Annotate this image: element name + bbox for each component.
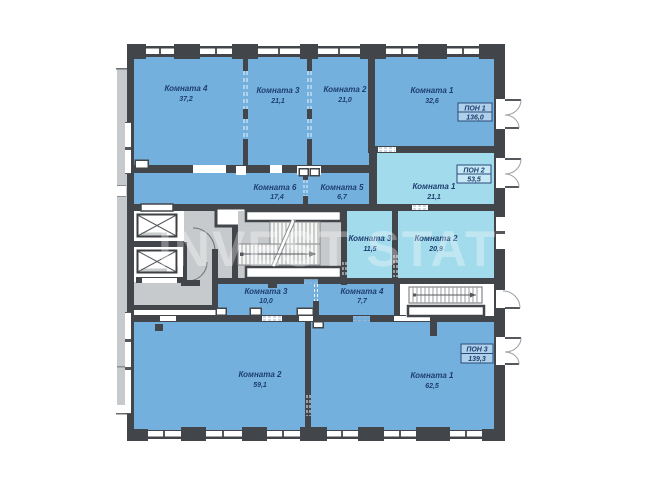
svg-text:37,2: 37,2 <box>179 96 193 103</box>
svg-text:ПОН 3: ПОН 3 <box>466 347 487 354</box>
svg-text:21,1: 21,1 <box>426 194 441 201</box>
svg-text:139,3: 139,3 <box>468 356 486 363</box>
svg-text:17,4: 17,4 <box>270 194 284 201</box>
svg-text:Комната 2: Комната 2 <box>324 85 367 94</box>
svg-text:Комната 1: Комната 1 <box>411 86 454 95</box>
svg-text:62,5: 62,5 <box>425 383 439 390</box>
svg-text:6,7: 6,7 <box>337 194 348 201</box>
svg-text:Комната 1: Комната 1 <box>411 371 454 380</box>
svg-text:59,1: 59,1 <box>253 382 267 389</box>
svg-text:Комната 4: Комната 4 <box>165 84 208 93</box>
svg-text:Комната 3: Комната 3 <box>257 86 300 95</box>
svg-text:Комната 1: Комната 1 <box>413 182 456 191</box>
svg-text:INVEST STAT: INVEST STAT <box>158 221 498 277</box>
svg-text:ПОН 2: ПОН 2 <box>463 168 484 175</box>
svg-text:10,0: 10,0 <box>259 298 273 305</box>
svg-text:Комната 6: Комната 6 <box>254 183 297 192</box>
svg-text:Комната 4: Комната 4 <box>341 287 384 296</box>
svg-text:ПОН 1: ПОН 1 <box>464 106 485 113</box>
svg-text:7,7: 7,7 <box>357 298 368 305</box>
svg-text:Комната 3: Комната 3 <box>245 287 288 296</box>
svg-text:Комната 2: Комната 2 <box>239 370 282 379</box>
svg-text:21,1: 21,1 <box>270 98 285 105</box>
svg-text:136,0: 136,0 <box>466 115 484 122</box>
svg-text:21,0: 21,0 <box>337 97 352 104</box>
svg-text:32,6: 32,6 <box>425 98 439 105</box>
svg-text:53,5: 53,5 <box>467 177 481 184</box>
svg-text:Комната 5: Комната 5 <box>321 183 364 192</box>
